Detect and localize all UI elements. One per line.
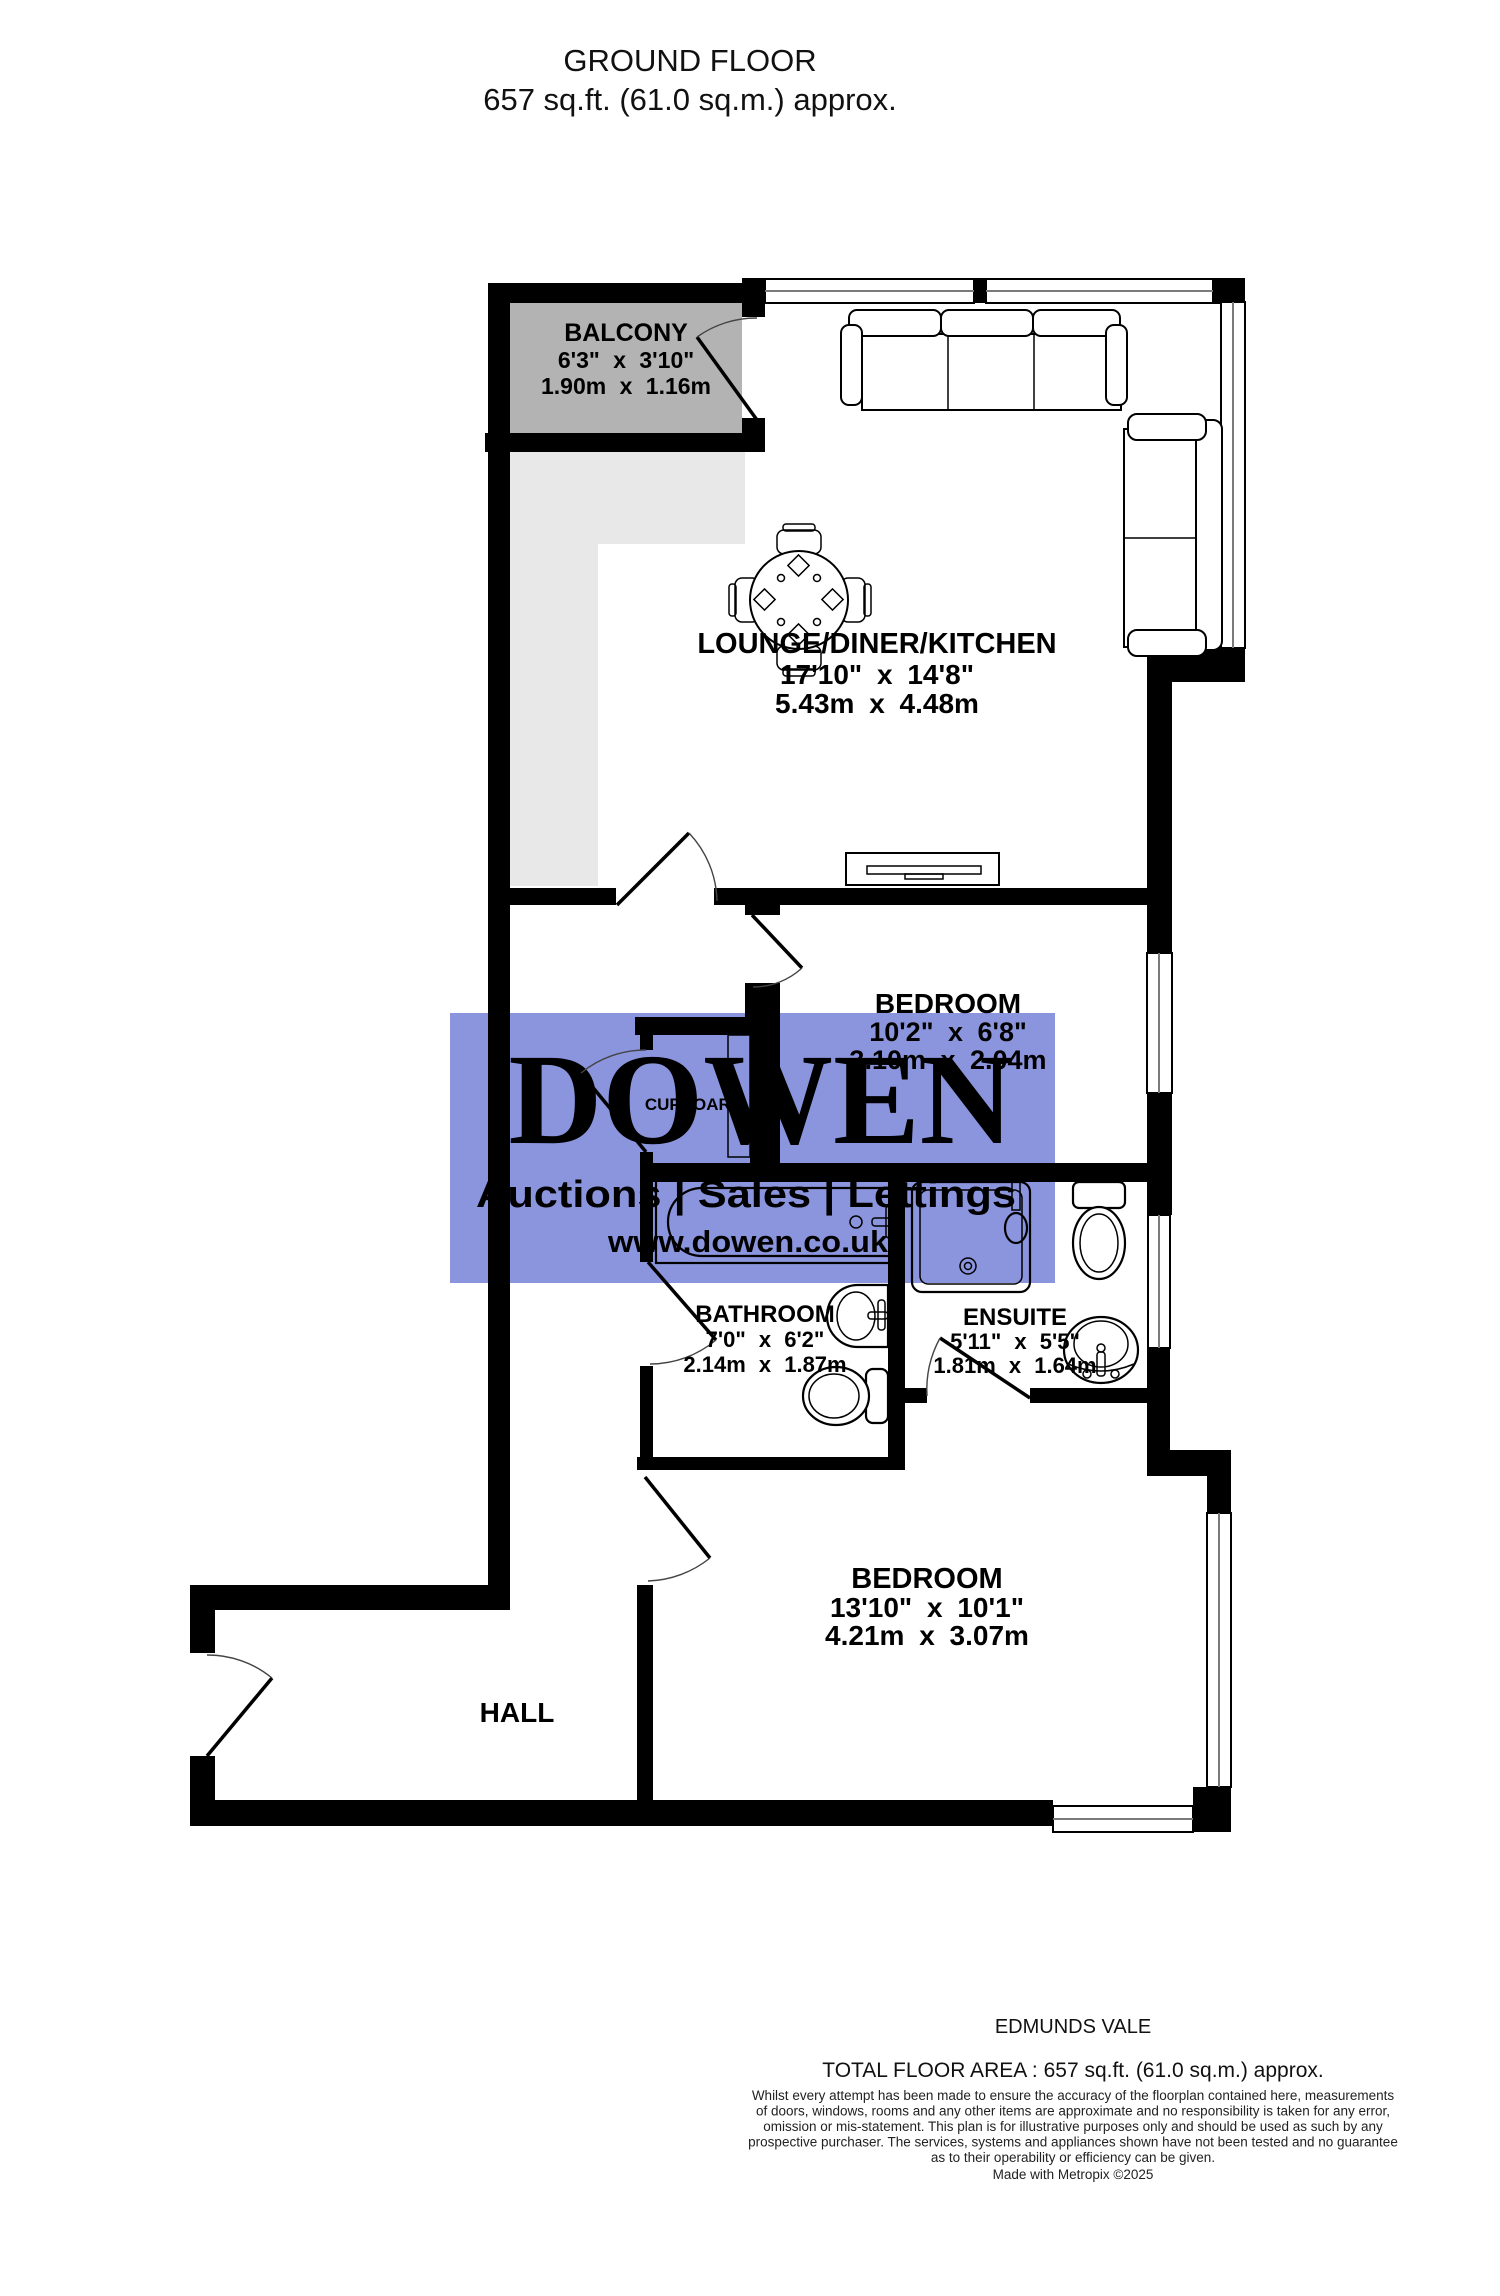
wall-cupboard-right — [750, 1035, 780, 1182]
svg-text:10'2" x 6'8": 10'2" x 6'8" — [869, 1017, 1027, 1047]
bathroom-sink — [827, 1285, 888, 1347]
disclaimer-line-2: of doors, windows, rooms and any other i… — [756, 2104, 1390, 2119]
shaded-area-lower — [510, 544, 598, 886]
wall-bedroom1-left-stub — [745, 905, 780, 915]
wall-corner-bedroom2-top — [1207, 1476, 1231, 1516]
wall-hall-top — [190, 1585, 508, 1610]
wall-corridor-low — [640, 1366, 653, 1470]
wall-balcony-bottom — [485, 433, 765, 452]
svg-text:5'11" x 5'5": 5'11" x 5'5" — [950, 1329, 1080, 1354]
room-label-lounge-diner-kitchen: LOUNGE/DINER/KITCHEN 17'10" x 14'8" 5.43… — [697, 628, 1056, 719]
svg-text:BATHROOM: BATHROOM — [695, 1301, 835, 1328]
wall-balcony-door-jamb-top — [742, 278, 765, 317]
room-label-bedroom-2: BEDROOM 13'10" x 10'1" 4.21m x 3.07m — [825, 1563, 1029, 1651]
total-floor-area: TOTAL FLOOR AREA : 657 sq.ft. (61.0 sq.m… — [822, 2059, 1323, 2082]
disclaimer-line-5: as to their operability or efficiency ca… — [931, 2150, 1215, 2165]
plan-title: GROUND FLOOR 657 sq.ft. (61.0 sq.m.) app… — [483, 43, 897, 117]
sofa-three-seat — [841, 310, 1127, 410]
wall-left — [488, 283, 510, 1610]
room-label-bedroom-1: BEDROOM 10'2" x 6'8" 3.10m x 2.04m — [849, 988, 1046, 1075]
shaded-area-upper — [510, 452, 745, 544]
svg-text:BEDROOM: BEDROOM — [851, 1563, 1002, 1595]
disclaimer-line-1: Whilst every attempt has been made to en… — [752, 2088, 1395, 2103]
wall-lounge-bottom-left — [510, 888, 616, 905]
svg-text:3.10m x 2.04m: 3.10m x 2.04m — [849, 1045, 1046, 1075]
room-label-hall: HALL — [480, 1697, 555, 1728]
svg-text:13'10" x 10'1": 13'10" x 10'1" — [830, 1592, 1024, 1623]
window-lounge-top-left — [765, 279, 974, 303]
wall-hall-left-upper — [190, 1585, 215, 1653]
window-lounge-top-right — [986, 279, 1213, 303]
window-ensuite-right — [1148, 1215, 1170, 1348]
svg-text:1.81m x 1.64m: 1.81m x 1.64m — [933, 1353, 1096, 1378]
wall-cupboard-top — [635, 1017, 750, 1035]
floorplan-page: DOWEN Auctions | Sales | Lettings www.do… — [0, 0, 1500, 2296]
wall-balcony-top — [488, 283, 765, 303]
window-bedroom1-right — [1147, 953, 1172, 1093]
window-lounge-right — [1221, 302, 1245, 648]
svg-text:7'0" x 6'2": 7'0" x 6'2" — [706, 1327, 825, 1352]
wall-step-bedroom2 — [1147, 1450, 1231, 1476]
wall-bottom — [190, 1800, 1053, 1826]
wall-ensuite-bottom-left — [905, 1388, 927, 1403]
svg-text:CUPBOARD: CUPBOARD — [645, 1095, 743, 1114]
wall-corner-top-right — [1213, 278, 1245, 304]
svg-text:LOUNGE/DINER/KITCHEN: LOUNGE/DINER/KITCHEN — [697, 628, 1056, 660]
wall-window-mullion — [974, 278, 986, 303]
footer: EDMUNDS VALE TOTAL FLOOR AREA : 657 sq.f… — [748, 2016, 1398, 2182]
svg-text:4.21m x 3.07m: 4.21m x 3.07m — [825, 1620, 1029, 1651]
property-name: EDMUNDS VALE — [995, 2016, 1151, 2038]
bedroom2-door — [645, 1477, 710, 1581]
svg-text:1.90m x 1.16m: 1.90m x 1.16m — [541, 373, 711, 399]
window-bedroom2-bottom — [1053, 1806, 1193, 1832]
wall-bedroom1-left — [745, 983, 780, 1035]
wall-right-lower — [1147, 1348, 1170, 1450]
svg-text:17'10" x 14'8": 17'10" x 14'8" — [780, 659, 974, 690]
window-bedroom2-right — [1207, 1513, 1231, 1787]
wall-right-mid — [1147, 1093, 1172, 1215]
svg-text:HALL: HALL — [480, 1697, 555, 1728]
wall-lounge-bottom-right — [714, 888, 1172, 905]
entrance-door — [207, 1655, 272, 1756]
wall-hall-left-lower — [190, 1756, 215, 1804]
lounge-door — [617, 833, 717, 905]
plan-title-line1: GROUND FLOOR — [563, 43, 816, 78]
metropix-credit: Made with Metropix ©2025 — [993, 2167, 1154, 2182]
disclaimer-line-4: prospective purchaser. The services, sys… — [748, 2135, 1398, 2150]
svg-text:ENSUITE: ENSUITE — [963, 1304, 1067, 1331]
svg-text:BALCONY: BALCONY — [564, 319, 688, 347]
svg-text:6'3" x 3'10": 6'3" x 3'10" — [558, 347, 694, 373]
svg-text:5.43m x 4.48m: 5.43m x 4.48m — [775, 688, 979, 719]
wall-balcony-door-jamb-bottom — [742, 418, 765, 452]
room-label-cupboard: CUPBOARD — [645, 1095, 743, 1114]
wall-right-upper — [1147, 682, 1172, 953]
wall-ensuite-bottom-right — [1030, 1388, 1147, 1403]
sofa-two-seat — [1124, 414, 1222, 656]
plan-title-line2: 657 sq.ft. (61.0 sq.m.) approx. — [483, 82, 897, 117]
room-label-balcony: BALCONY 6'3" x 3'10" 1.90m x 1.16m — [541, 319, 711, 399]
svg-text:BEDROOM: BEDROOM — [875, 988, 1021, 1019]
room-label-bathroom: BATHROOM 7'0" x 6'2" 2.14m x 1.87m — [683, 1301, 846, 1377]
svg-text:2.14m x 1.87m: 2.14m x 1.87m — [683, 1352, 846, 1377]
wall-corridor-mid — [640, 1152, 653, 1262]
ensuite-toilet — [1073, 1182, 1125, 1279]
wall-cupboard-left-stub — [640, 1035, 653, 1050]
tv-unit — [846, 853, 999, 885]
wall-bathroom-bottom — [637, 1457, 905, 1470]
disclaimer-line-3: omission or mis-statement. This plan is … — [763, 2119, 1383, 2134]
wall-corner-bottom-right — [1193, 1787, 1231, 1832]
bedroom1-door — [752, 915, 802, 987]
wall-bedroom2-left — [637, 1585, 653, 1800]
room-label-ensuite: ENSUITE 5'11" x 5'5" 1.81m x 1.64m — [933, 1304, 1096, 1378]
